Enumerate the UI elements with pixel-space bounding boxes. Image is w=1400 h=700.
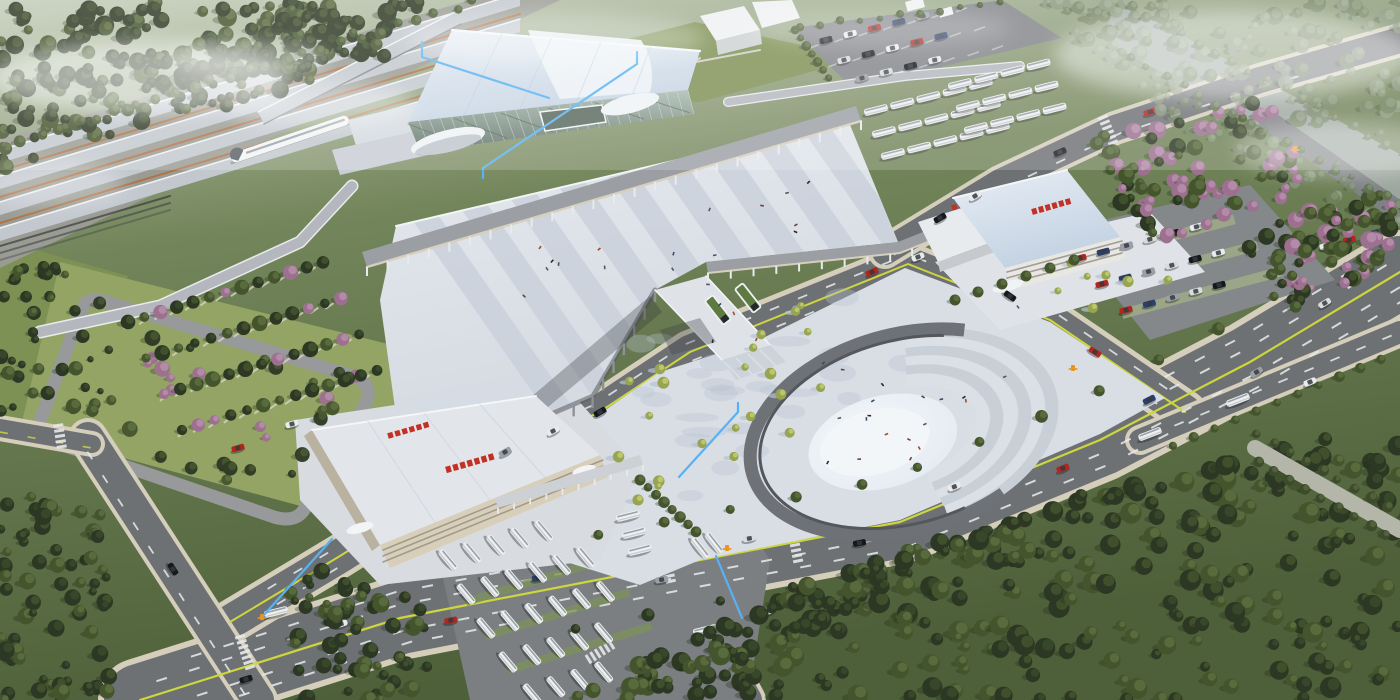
paving-shadow (710, 386, 745, 395)
tree-highlight (1021, 636, 1033, 648)
paving-shadow (675, 413, 719, 422)
tree-highlight (1334, 537, 1340, 543)
shelter-post (610, 475, 612, 481)
aerial-rendering (0, 0, 1400, 700)
canopy-post (428, 249, 430, 258)
tree-highlight (1001, 688, 1011, 698)
tree-highlight (844, 603, 852, 611)
tree-highlight (904, 626, 912, 634)
canopy-post (695, 170, 697, 179)
car-glass (857, 540, 863, 545)
tree-highlight (1238, 566, 1248, 576)
tree-highlight (66, 677, 71, 682)
canopy-post (844, 259, 846, 267)
tree-highlight (903, 578, 914, 589)
canopy-post (469, 237, 471, 246)
shelter-post (529, 498, 531, 504)
tree-highlight (1339, 242, 1348, 251)
tree-highlight (1205, 219, 1211, 225)
tree-highlight (1177, 184, 1186, 193)
canopy-post (613, 194, 615, 203)
tree-highlight (1362, 216, 1369, 223)
tree-highlight (816, 600, 822, 606)
tree-highlight (99, 510, 105, 516)
canopy-post (634, 188, 636, 197)
tree-highlight (1227, 577, 1234, 584)
tree-highlight (1383, 580, 1393, 590)
tree-highlight (1122, 676, 1129, 683)
tree-highlight (1373, 547, 1384, 558)
tree-highlight (1037, 548, 1043, 554)
paving-shadow (825, 288, 859, 306)
tree-highlight (825, 681, 831, 687)
tree-highlight (1344, 660, 1352, 668)
tree-highlight (1218, 596, 1225, 603)
shelter-post (513, 503, 515, 509)
tree-highlight (1208, 181, 1215, 188)
shelter-post (578, 484, 580, 490)
tree-highlight (959, 656, 966, 663)
tree-highlight (1272, 640, 1278, 646)
tree-highlight (1331, 192, 1338, 199)
tree-highlight (1154, 510, 1163, 519)
tree-highlight (903, 612, 911, 620)
tree-highlight (1349, 272, 1357, 280)
tree-highlight (1290, 239, 1299, 248)
canopy-post (675, 176, 677, 185)
tree-highlight (1022, 513, 1031, 522)
rendering-stage (0, 0, 1400, 700)
tree-highlight (771, 604, 777, 610)
tree-highlight (576, 692, 582, 698)
tree-highlight (1188, 560, 1196, 568)
tree-highlight (1284, 184, 1289, 189)
deck-column (572, 404, 574, 416)
canopy-post (654, 182, 656, 191)
canopy-post (889, 254, 891, 262)
canopy-post (490, 231, 492, 240)
tree-highlight (873, 565, 879, 571)
tree-highlight (794, 595, 804, 605)
tree-highlight (1335, 216, 1340, 221)
tree-highlight (780, 658, 791, 669)
tree-highlight (1148, 197, 1154, 203)
tree-highlight (1234, 197, 1242, 205)
tree-highlight (1391, 208, 1396, 213)
tree-highlight (1354, 635, 1360, 641)
tree-highlight (1134, 484, 1144, 494)
canopy-post (821, 261, 823, 269)
paving-shadow (632, 386, 655, 397)
tree-highlight (1249, 467, 1257, 475)
tree-highlight (1065, 644, 1074, 653)
tree-highlight (1387, 239, 1394, 246)
tree-highlight (1069, 692, 1076, 699)
tree-highlight (1367, 232, 1377, 242)
canopy-post (730, 271, 732, 279)
tree-highlight (1290, 675, 1297, 682)
tree-highlight (653, 653, 663, 663)
tree-highlight (1286, 555, 1296, 565)
tree-highlight (666, 683, 673, 690)
tree-highlight (1204, 662, 1210, 668)
tree-highlight (1375, 454, 1385, 464)
tree-highlight (718, 648, 729, 659)
tree-highlight (1187, 571, 1199, 583)
tree-highlight (1180, 229, 1186, 235)
tree-highlight (1128, 504, 1140, 516)
tree-highlight (1071, 510, 1079, 518)
tree-highlight (1275, 255, 1282, 262)
tree-highlight (92, 588, 97, 593)
tree-highlight (1051, 551, 1058, 558)
tree-highlight (921, 550, 930, 559)
tree-highlight (1134, 679, 1146, 691)
tree-highlight (656, 680, 664, 688)
tree-highlight (1152, 184, 1160, 192)
deck-column (612, 361, 614, 373)
tree-highlight (1121, 185, 1126, 190)
tree-highlight (1150, 497, 1158, 505)
tree-highlight (1354, 201, 1363, 210)
tree-highlight (873, 556, 883, 566)
tree-highlight (777, 680, 783, 686)
tree-highlight (1196, 636, 1202, 642)
tree-highlight (956, 577, 962, 583)
tree-highlight (1272, 590, 1281, 599)
tree-highlight (1107, 536, 1118, 547)
tree-highlight (937, 534, 947, 544)
canopy-post (798, 264, 800, 272)
tree-highlight (1119, 621, 1125, 627)
canopy-post (775, 266, 777, 274)
tree-highlight (1301, 692, 1308, 699)
tree-highlight (1225, 490, 1237, 502)
tree-highlight (1297, 232, 1305, 240)
tree-highlight (1222, 457, 1233, 468)
tree-highlight (1084, 557, 1093, 566)
tree-highlight (1324, 207, 1333, 216)
tree-highlight (956, 633, 962, 639)
tree-highlight (1211, 528, 1219, 536)
tree-highlight (898, 662, 908, 672)
paving-shadow (768, 336, 811, 346)
tree-highlight (1119, 195, 1129, 205)
tree-highlight (1157, 538, 1166, 547)
tree-highlight (723, 670, 730, 677)
tree-highlight (591, 684, 599, 692)
tree-highlight (1279, 193, 1286, 200)
tree-highlight (1306, 504, 1318, 516)
tree-highlight (1260, 173, 1265, 178)
tree-highlight (1292, 531, 1298, 537)
car-glass (448, 618, 454, 623)
tree-highlight (1325, 661, 1333, 669)
pedestrian (706, 283, 710, 285)
tree-highlight (1281, 280, 1286, 285)
tree-highlight (1176, 612, 1182, 618)
tree-highlight (841, 667, 848, 674)
tree-highlight (1269, 171, 1275, 177)
tree-highlight (1389, 201, 1395, 207)
deck-column (623, 343, 625, 355)
tree-highlight (1294, 302, 1301, 309)
tree-highlight (1278, 264, 1284, 270)
tree-highlight (1140, 183, 1147, 190)
tree-highlight (901, 552, 912, 563)
tree-highlight (1129, 194, 1134, 199)
tree-highlight (1273, 609, 1283, 619)
tree-highlight (666, 677, 672, 683)
canopy-post (911, 248, 913, 256)
tree-highlight (935, 634, 942, 641)
tree-highlight (964, 642, 970, 648)
tree-highlight (1323, 433, 1331, 441)
shelter-post (626, 470, 628, 476)
tree-highlight (1301, 277, 1306, 282)
tree-highlight (1350, 183, 1356, 189)
tree-highlight (1208, 673, 1216, 681)
shelter-post (545, 494, 547, 500)
tree-highlight (1165, 228, 1173, 236)
tree-highlight (1195, 180, 1205, 190)
tree-highlight (696, 678, 702, 684)
tree-highlight (1067, 547, 1074, 554)
car-glass (746, 536, 752, 541)
tree-highlight (1107, 493, 1114, 500)
tree-highlight (1328, 678, 1340, 690)
tree-highlight (1103, 575, 1114, 586)
tree-highlight (818, 613, 826, 621)
tree-highlight (791, 648, 802, 659)
deck-column (602, 379, 604, 391)
tree-highlight (1151, 229, 1156, 234)
tree-highlight (1176, 196, 1182, 202)
deck-column (591, 396, 593, 408)
tree-highlight (1362, 265, 1367, 270)
tree-highlight (852, 598, 859, 605)
tree-highlight (1345, 219, 1352, 226)
tree-highlight (1251, 201, 1257, 207)
tree-highlight (1278, 220, 1283, 225)
tree-highlight (876, 593, 888, 605)
paving-shadow (677, 490, 703, 501)
tree-highlight (819, 674, 825, 680)
tree-highlight (1224, 506, 1235, 517)
tree-highlight (1207, 566, 1218, 577)
canopy-post (448, 243, 450, 252)
tree-highlight (694, 687, 704, 697)
tree-highlight (708, 686, 716, 694)
paving-shadow (711, 460, 739, 475)
tree-highlight (1325, 617, 1331, 623)
tree-highlight (1051, 532, 1061, 542)
tree-highlight (1181, 176, 1187, 182)
tree-highlight (1337, 455, 1344, 462)
tree-highlight (998, 642, 1008, 652)
canopy-post (510, 224, 512, 233)
tree-highlight (923, 618, 929, 624)
tree-highlight (1330, 570, 1340, 580)
tree-highlight (1115, 490, 1122, 497)
tree-highlight (1379, 250, 1384, 255)
tree-highlight (1345, 263, 1351, 269)
tree-highlight (740, 653, 748, 661)
tree-highlight (1200, 618, 1208, 626)
tree-highlight (1298, 295, 1304, 301)
shelter-post (497, 508, 499, 514)
tree-highlight (1331, 230, 1338, 237)
tree-highlight (793, 622, 800, 629)
tree-highlight (1051, 584, 1062, 595)
pedestrian (857, 458, 861, 460)
tree-highlight (725, 620, 735, 630)
tree-highlight (1182, 473, 1193, 484)
tree-highlight (1050, 503, 1061, 514)
tree-highlight (1024, 656, 1032, 664)
tree-highlight (1387, 221, 1397, 231)
tree-highlight (955, 539, 963, 547)
pedestrian (866, 417, 868, 421)
tree-highlight (1142, 559, 1152, 569)
tree-highlight (835, 624, 842, 631)
tree-highlight (997, 617, 1008, 628)
tree-highlight (1232, 603, 1243, 614)
tree-highlight (1290, 622, 1296, 628)
tree-highlight (1302, 678, 1311, 687)
shelter-post (642, 465, 644, 471)
tree-highlight (1310, 452, 1322, 464)
tree-highlight (1061, 571, 1072, 582)
canopy-post (531, 218, 533, 227)
tree-highlight (908, 691, 915, 698)
tree-highlight (1025, 543, 1034, 552)
canopy-post (366, 267, 368, 276)
tree-highlight (1372, 473, 1381, 482)
tree-highlight (746, 627, 752, 633)
tree-highlight (801, 619, 810, 628)
tree-highlight (93, 579, 99, 585)
tree-highlight (1110, 653, 1119, 662)
tree-highlight (730, 648, 736, 654)
tree-highlight (1303, 245, 1311, 253)
tree-highlight (1086, 513, 1092, 519)
tree-highlight (1012, 552, 1019, 559)
tree-highlight (1298, 638, 1304, 644)
tree-highlight (1150, 528, 1160, 538)
tree-highlight (805, 578, 815, 588)
canopy-post (592, 200, 594, 209)
tree-highlight (1229, 680, 1237, 688)
tree-highlight (1315, 654, 1325, 664)
tree-highlight (1145, 204, 1152, 211)
tree-highlight (1168, 596, 1176, 604)
tree-highlight (1130, 630, 1138, 638)
tree-highlight (1348, 534, 1354, 540)
tree-highlight (1321, 642, 1327, 648)
pedestrian (867, 415, 871, 417)
tree-highlight (773, 620, 780, 627)
tree-highlight (1042, 639, 1053, 650)
tree-highlight (928, 656, 938, 666)
tree-highlight (938, 582, 948, 592)
tree-highlight (1164, 637, 1174, 647)
canopy-post (753, 268, 755, 276)
tree-highlight (850, 581, 862, 593)
tree-highlight (1376, 674, 1383, 681)
tree-highlight (774, 689, 782, 697)
shelter-post (562, 489, 564, 495)
canopy-post (707, 273, 709, 281)
tree-highlight (628, 679, 639, 690)
tree-highlight (1228, 181, 1237, 190)
tree-highlight (957, 591, 966, 600)
tree-highlight (1038, 694, 1045, 700)
canopy-post (551, 212, 553, 221)
tree-highlight (880, 582, 886, 588)
tree-highlight (1242, 597, 1253, 608)
tree-highlight (827, 597, 835, 605)
canopy-post (866, 256, 868, 264)
tree-highlight (814, 589, 824, 599)
canopy-post (572, 206, 574, 215)
paving-shadow (686, 368, 712, 379)
tree-highlight (976, 531, 988, 543)
tree-highlight (1277, 662, 1288, 673)
tree-highlight (852, 643, 858, 649)
tree-highlight (1069, 593, 1076, 600)
tree-highlight (1210, 484, 1221, 495)
tree-highlight (1343, 278, 1349, 284)
tree-highlight (1193, 543, 1202, 552)
tree-highlight (1351, 462, 1361, 472)
tree-highlight (1304, 176, 1309, 181)
tree-highlight (1160, 483, 1167, 490)
tree-highlight (930, 679, 941, 690)
car-glass (659, 577, 665, 582)
tree-highlight (1089, 627, 1097, 635)
tree-highlight (1190, 195, 1198, 203)
tree-highlight (1309, 208, 1316, 215)
tree-highlight (1264, 229, 1273, 238)
paving-shadow (746, 381, 776, 392)
tree-highlight (1291, 271, 1297, 277)
tree-highlight (1357, 623, 1368, 634)
tree-highlight (1187, 517, 1197, 527)
tree-highlight (1222, 208, 1230, 216)
tree-highlight (947, 687, 957, 697)
canopy-post (387, 261, 389, 270)
tree-highlight (1370, 596, 1381, 607)
tree-highlight (956, 622, 968, 634)
tree-highlight (748, 641, 758, 651)
canopy-post (407, 255, 409, 264)
tree-highlight (1247, 241, 1255, 249)
tree-highlight (1298, 259, 1303, 264)
tree-highlight (1247, 500, 1255, 508)
tree-highlight (1007, 580, 1014, 587)
shelter-post (594, 479, 596, 485)
tree-highlight (1031, 669, 1039, 677)
tree-highlight (1336, 529, 1345, 538)
tree-highlight (993, 552, 1003, 562)
tree-highlight (855, 686, 866, 697)
